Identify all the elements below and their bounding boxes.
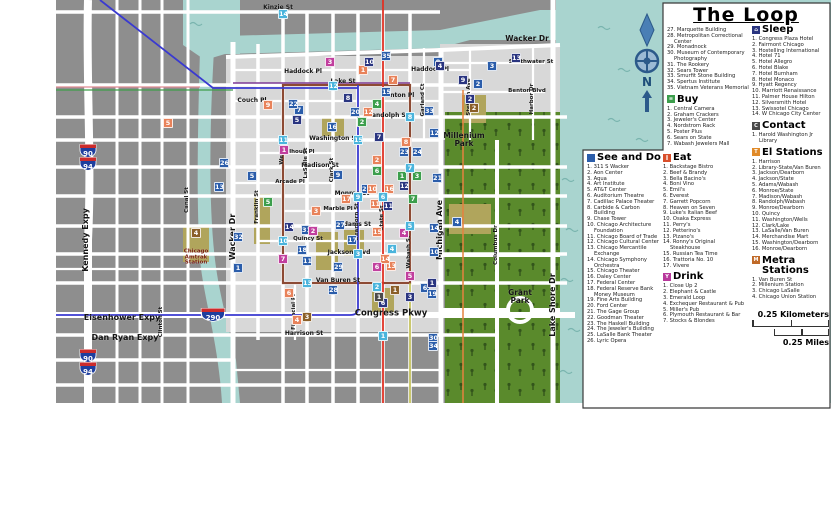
legend-item: 35. Vietnam Veterans Memorial	[667, 86, 755, 92]
el-station-items: 1. Harrison2. Library-State/Van Buren3. …	[752, 160, 829, 253]
sleep-icon: ⌂	[752, 26, 760, 34]
sleep-header-label: Sleep	[762, 25, 793, 35]
legend-column-right: ⌂ Sleep 1. Congress Plaza Hotel2. Fairmo…	[752, 22, 829, 347]
scale-miles-bar	[774, 329, 829, 336]
buy-icon: ≡	[667, 95, 675, 103]
see-do-icon	[587, 154, 595, 162]
metra-stations-header-label: Metra Stations	[762, 256, 829, 276]
compass-n-label: N	[642, 75, 652, 89]
eat-header-label: Eat	[673, 153, 691, 163]
legend-column-seedo-cont: 27. Marquette Building28. Metropolitan C…	[667, 28, 755, 147]
drink-icon: Y	[663, 273, 671, 281]
legend-item: 4. Chicago Union Station	[752, 295, 829, 301]
legend-item: 1. Harold Washington Jr Library	[752, 133, 829, 145]
scale-km-label: 0.25 Kilometers	[752, 310, 829, 319]
drink-section-header: Y Drink	[663, 272, 745, 282]
shield-90-label: 90	[83, 150, 93, 158]
legend-item: 17. Vivere	[663, 264, 745, 270]
sleep-items: 1. Congress Plaza Hotel2. Fairmont Chica…	[752, 37, 829, 118]
eat-icon: ∥	[663, 154, 671, 162]
eat-items: 1. Backstage Bistro2. Beef & Brandy3. Be…	[663, 165, 745, 269]
see-do-section-header: See and Do	[587, 153, 661, 163]
scale-km-bar	[752, 320, 829, 327]
legend-item: 7. Wabash Jewelers Mall	[667, 142, 755, 148]
el-stations-section-header: T El Stations	[752, 148, 829, 158]
metra-station-items: 1. Van Buren St2. Millenium Station3. Ch…	[752, 278, 829, 301]
drink-items: 1. Close Up 22. Elephant & Castle3. Emer…	[663, 284, 745, 325]
scale-miles-label: 0.25 Miles	[752, 338, 829, 347]
shield-94-label: 94	[83, 163, 93, 171]
loop-map-page: { "legend": { "title": "The Loop", "see_…	[0, 0, 831, 512]
contact-items: 1. Harold Washington Jr Library	[752, 133, 829, 145]
buy-header-label: Buy	[677, 95, 698, 105]
drink-header-label: Drink	[673, 272, 703, 282]
see-do-items: 1. 311 S Wacker2. Aon Center3. Aqua4. Ar…	[587, 165, 661, 345]
legend-column-eat: ∥ Eat 1. Backstage Bistro2. Beef & Brand…	[663, 150, 745, 325]
contact-header-label: Contact	[762, 121, 806, 131]
contact-section-header: C Contact	[752, 121, 829, 131]
shield-290-label: 290	[206, 314, 221, 322]
metra-stations-section-header: M Metra Stations	[752, 256, 829, 276]
legend-item: 7. Stocks & Blondes	[663, 319, 745, 325]
legend-item: 16. Monroe/Dearborn	[752, 247, 829, 253]
el-stations-header-label: El Stations	[762, 148, 823, 158]
sleep-section-header: ⌂ Sleep	[752, 25, 829, 35]
eat-section-header: ∥ Eat	[663, 153, 745, 163]
shield-90-south-label: 90	[83, 355, 93, 363]
buy-items: 1. Central Camera2. Graham Crackers3. Je…	[667, 107, 755, 148]
map-scale: 0.25 Kilometers 0.25 Miles	[752, 310, 829, 347]
legend-item: 26. Lyric Opera	[587, 339, 661, 345]
contact-icon: C	[752, 122, 760, 130]
metra-stations-icon: M	[752, 256, 760, 264]
legend-column-seedo: See and Do 1. 311 S Wacker2. Aon Center3…	[587, 150, 661, 345]
legend-item: 14. W Chicago City Center	[752, 112, 829, 118]
see-do-header-label: See and Do	[597, 153, 661, 163]
see-do-items-27-35: 27. Marquette Building28. Metropolitan C…	[667, 28, 755, 92]
buy-section-header: ≡ Buy	[667, 95, 755, 105]
legend-item: 13. Chicago Mercantile Exchange	[587, 246, 661, 258]
legend-item: 10. Chicago Architecture Foundation	[587, 223, 661, 235]
el-stations-icon: T	[752, 148, 760, 156]
shield-94-south-label: 94	[83, 368, 93, 376]
